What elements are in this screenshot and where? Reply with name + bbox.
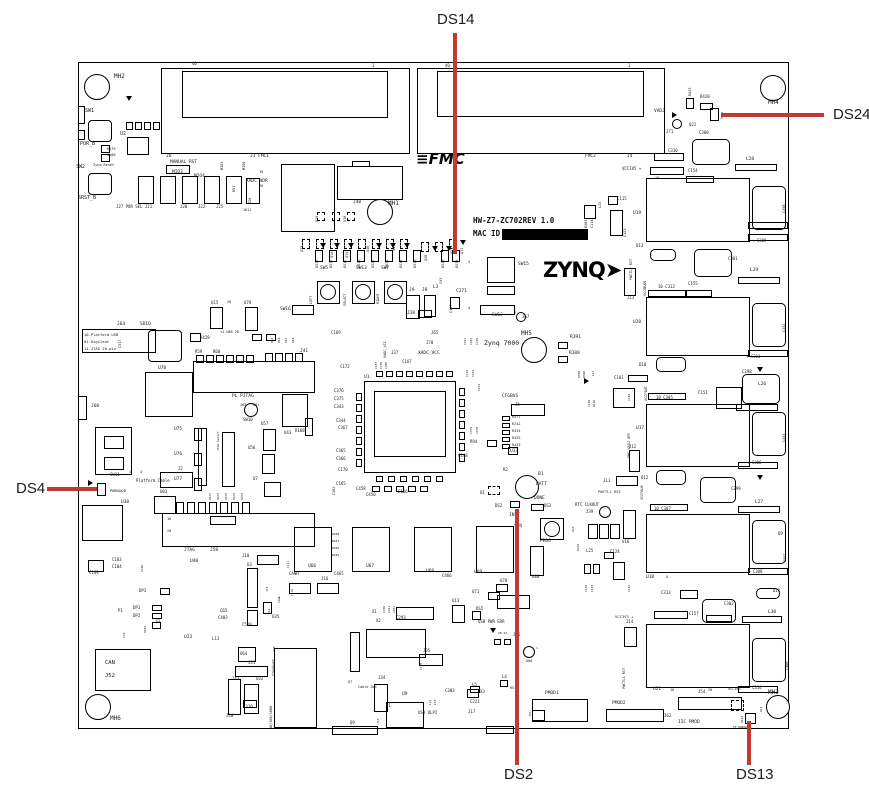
board-component — [426, 371, 433, 377]
silkscreen-label: L26 — [758, 383, 766, 388]
silkscreen-label: SW7 — [381, 267, 389, 272]
silkscreen-label: C172 — [340, 365, 350, 369]
silkscreen-label: R379 — [233, 493, 236, 500]
board-component — [210, 516, 236, 525]
silkscreen-label: L4 — [502, 675, 507, 679]
silkscreen-label: 1 — [628, 64, 630, 68]
silkscreen-label: U71 — [472, 590, 479, 594]
silkscreen-label: J70 — [426, 341, 433, 345]
board-component — [502, 437, 510, 442]
board-component — [78, 106, 85, 124]
silkscreen-label: L21 — [592, 371, 595, 376]
silkscreen-label: ETHERNET — [273, 659, 277, 676]
board-component — [356, 448, 362, 456]
silkscreen-label: J63 — [240, 404, 246, 408]
silkscreen-label: R420 — [700, 95, 710, 99]
silkscreen-label: U17 — [636, 427, 644, 432]
silkscreen-label: R388 — [569, 352, 580, 357]
silkscreen-label: J27 POR SEL J21 — [116, 205, 152, 209]
silkscreen-label: C170 — [338, 468, 348, 472]
board-component — [194, 428, 202, 441]
silkscreen-label: Q22 — [689, 123, 696, 127]
silkscreen-label: J8 — [422, 289, 427, 294]
board-revision-text: HW-Z7-ZC702REV 1.0 — [473, 217, 554, 225]
silkscreen-label: J62 — [664, 714, 671, 718]
silkscreen-label: U9 — [402, 693, 407, 698]
silkscreen-label: J20 — [180, 205, 187, 209]
board-component — [752, 520, 786, 564]
board-component — [616, 476, 638, 486]
silkscreen-label: J12 — [629, 445, 636, 449]
board-component — [356, 426, 362, 434]
silkscreen-label: MIO5 — [221, 162, 225, 170]
polarity-mark — [404, 243, 410, 248]
silkscreen-label: J2 — [178, 467, 183, 471]
silkscreen-label: L3 — [433, 286, 438, 291]
silkscreen-label: 1 — [129, 471, 131, 475]
silkscreen-label: C379 — [470, 427, 473, 434]
polarity-mark — [460, 240, 466, 245]
silkscreen-label: C129 — [585, 585, 588, 592]
callout-line-ds4 — [47, 487, 97, 491]
board-component — [263, 429, 276, 451]
board-component — [487, 286, 515, 295]
silkscreen-label: R390 — [583, 371, 586, 378]
board-component — [558, 356, 568, 363]
silkscreen-label: J6 — [166, 155, 171, 160]
board-component — [646, 514, 750, 573]
silkscreen-label: J67 — [522, 315, 529, 319]
silkscreen-label: C148 — [458, 454, 468, 458]
silkscreen-label: PWCTL1 RST — [623, 668, 627, 689]
board-component — [210, 307, 223, 329]
board-component — [104, 436, 124, 449]
silkscreen-label: PWCTL1 RST — [598, 490, 621, 494]
silkscreen-label: C385 — [385, 362, 388, 369]
silkscreen-label: 10 C305 — [656, 396, 673, 400]
board-component — [424, 476, 431, 482]
silkscreen-label: C450 — [366, 493, 376, 497]
silkscreen-label: 10 C307 — [654, 507, 671, 511]
silkscreen-label: RIGHT — [377, 293, 381, 304]
board-component — [235, 666, 268, 677]
silkscreen-label: DS19 — [414, 260, 418, 268]
board-component — [135, 122, 142, 130]
silkscreen-label: VADJ — [654, 110, 665, 115]
silkscreen-label: C149 — [89, 571, 99, 575]
silkscreen-label: C70 — [123, 633, 126, 638]
board-component — [502, 416, 510, 421]
silkscreen-label: U66 — [526, 660, 532, 664]
silkscreen-label: 20 — [259, 185, 263, 189]
silkscreen-label: C187 — [375, 362, 378, 369]
board-component — [599, 524, 609, 539]
silkscreen-label: DONE — [534, 497, 545, 502]
silkscreen-label: 11.JTAG 20-pin — [84, 347, 116, 351]
board-component — [467, 689, 479, 698]
silkscreen-label: J39 — [586, 510, 593, 514]
silkscreen-label: U18 — [646, 576, 654, 581]
board-component — [680, 590, 698, 599]
silkscreen-label: U81 — [253, 404, 259, 408]
silkscreen-label: 1 — [372, 64, 374, 68]
silkscreen-label: Cable Det — [358, 686, 377, 690]
board-component — [497, 595, 530, 609]
board-component — [350, 632, 360, 672]
silkscreen-label: C343 — [334, 405, 344, 409]
silkscreen-label: J11 — [603, 479, 610, 483]
silkscreen-label: U19 — [633, 212, 641, 217]
silkscreen-label: C165 — [336, 482, 346, 486]
silkscreen-label: Q13 — [301, 246, 305, 252]
silkscreen-label: SW13 — [356, 267, 367, 272]
silkscreen-label: PL PJTAG — [232, 395, 254, 400]
callout-label-ds4: DS4 — [16, 480, 45, 497]
board-component — [305, 418, 313, 436]
board-component — [502, 423, 510, 428]
silkscreen-label: R196 — [593, 400, 596, 407]
board-component — [88, 173, 112, 195]
silkscreen-label: C441 — [388, 606, 391, 613]
silkscreen-label: R242 — [512, 423, 520, 427]
silkscreen-label: R402 — [144, 626, 147, 633]
silkscreen-label: J17 — [468, 710, 475, 714]
board-component — [337, 166, 403, 200]
silkscreen-label: XADC_VCC — [384, 341, 388, 358]
silkscreen-label: J40 — [353, 201, 361, 206]
board-component — [160, 176, 176, 204]
silkscreen-label: C156 — [628, 585, 631, 592]
silkscreen-label: J58 — [210, 549, 218, 554]
board-component — [584, 564, 591, 574]
silkscreen-label: 19 — [259, 171, 263, 175]
board-component — [650, 167, 684, 175]
mounting-hole — [599, 506, 611, 518]
silkscreen-label: DS23 — [400, 260, 404, 268]
silkscreen-label: Q19 — [316, 216, 320, 222]
callout-label-ds14: DS14 — [437, 11, 475, 28]
silkscreen-label: S1 — [156, 620, 160, 624]
silkscreen-label: VCC1V5 + — [622, 167, 641, 171]
polarity-mark — [757, 367, 763, 372]
silkscreen-label: MH3 — [768, 690, 779, 696]
board-component — [459, 421, 465, 429]
silkscreen-label: R477 — [512, 416, 520, 420]
silkscreen-label: Platform Cable — [136, 479, 170, 483]
board-component — [154, 496, 176, 514]
silkscreen-label: U2 — [120, 132, 126, 137]
board-component — [247, 568, 258, 608]
board-component — [459, 443, 465, 451]
board-component — [742, 374, 780, 404]
board-component — [384, 486, 392, 492]
board-component — [476, 526, 514, 573]
silkscreen-label: U21 — [653, 688, 661, 693]
board-component — [593, 564, 600, 574]
silkscreen-label: DS17 — [344, 260, 348, 268]
board-component — [244, 684, 259, 714]
board-component — [738, 277, 780, 284]
silkscreen-label: R374 — [241, 493, 244, 500]
silkscreen-label: L30 — [768, 611, 776, 616]
silkscreen-label: R433 — [512, 444, 520, 448]
silkscreen-label: 10.Platform USB — [84, 333, 118, 337]
silkscreen-label: SW2 — [76, 165, 85, 170]
board-component — [494, 639, 501, 645]
silkscreen-label: FMC2 — [585, 155, 596, 160]
board-component — [162, 513, 315, 547]
silkscreen-label: J10 — [242, 554, 249, 558]
silkscreen-label: PMOD1 — [545, 692, 559, 697]
silkscreen-label: R371 — [209, 493, 212, 500]
silkscreen-label: LEFT — [310, 296, 314, 304]
board-component — [332, 212, 340, 221]
silkscreen-label: C313 — [661, 591, 671, 595]
board-component — [347, 212, 355, 221]
silkscreen-label: J31 — [248, 661, 255, 665]
silkscreen-label: + C309 — [752, 239, 766, 243]
silkscreen-label: USB PWR ERR — [478, 620, 505, 624]
mounting-hole — [760, 75, 786, 101]
board-component — [126, 122, 133, 130]
silkscreen-label: L10 — [434, 700, 437, 705]
board-component — [736, 404, 778, 411]
board-component — [654, 153, 684, 161]
board-component — [748, 222, 788, 229]
silkscreen-label: U1 — [364, 376, 369, 381]
board-component — [694, 249, 732, 277]
silkscreen-label: + C306 — [747, 461, 761, 465]
board-component — [710, 108, 719, 121]
silkscreen-label: U43 — [284, 431, 291, 435]
silkscreen-label: U66 — [308, 565, 316, 570]
silkscreen-label: C466 — [442, 574, 452, 578]
polarity-mark — [584, 378, 589, 384]
silkscreen-label: C301 — [728, 257, 738, 261]
callout-line-ds24 — [721, 113, 824, 117]
board-component — [356, 415, 362, 423]
board-component — [376, 476, 383, 482]
board-component — [742, 616, 782, 623]
silkscreen-label: R66 — [278, 338, 281, 343]
silkscreen-label: U79 — [244, 301, 251, 305]
board-component — [446, 371, 453, 377]
silkscreen-label: C111 — [287, 561, 290, 568]
silkscreen-label: VCCPINT — [645, 386, 649, 401]
silkscreen-label: SW12 — [492, 314, 503, 319]
silkscreen-label: X3 — [480, 690, 485, 694]
board-component — [257, 555, 279, 565]
board-component — [281, 164, 335, 232]
silkscreen-label: J1 — [386, 704, 391, 708]
board-component — [358, 239, 366, 249]
silkscreen-label: L27 — [755, 501, 763, 506]
silkscreen-label: 1 — [514, 311, 516, 315]
mounting-hole — [355, 284, 371, 300]
silkscreen-label: VCC3V3 — [728, 688, 741, 692]
board-component — [486, 726, 514, 734]
silkscreen-label: C48 — [273, 647, 276, 652]
silkscreen-label: MIO4 — [194, 175, 205, 180]
board-component — [228, 679, 241, 715]
board-component — [406, 371, 413, 377]
board-component — [613, 388, 635, 408]
board-component — [408, 486, 416, 492]
silkscreen-label: SW1 — [85, 109, 94, 114]
silkscreen-label: J26 — [249, 198, 253, 204]
silkscreen-label: 40 — [445, 64, 450, 68]
silkscreen-label: 1 — [536, 647, 538, 650]
board-component — [400, 476, 407, 482]
silkscreen-label: PWRGOOD — [110, 489, 126, 493]
silkscreen-label: VCCPAUX — [641, 485, 645, 500]
callout-label-ds2: DS2 — [504, 766, 533, 783]
polarity-mark — [672, 112, 677, 118]
board-component — [531, 504, 544, 511]
silkscreen-label: U35 — [272, 615, 279, 619]
silkscreen-label: R372 — [217, 493, 220, 500]
silkscreen-label: L13 — [212, 637, 219, 641]
silkscreen-label: R391 — [570, 336, 581, 341]
silkscreen-label: C166 — [398, 490, 408, 494]
silkscreen-label: XADC HDR — [246, 180, 268, 185]
silkscreen-label: C299 — [731, 487, 741, 491]
board-component — [623, 510, 636, 539]
silkscreen-label: C298 — [742, 370, 752, 374]
silkscreen-label: C153 — [624, 229, 628, 237]
callout-line-ds14 — [453, 33, 457, 254]
silkscreen-label: C271 — [456, 290, 467, 295]
silkscreen-label: C65 — [220, 609, 227, 613]
silkscreen-label: 40 — [192, 62, 197, 66]
silkscreen-label: U37 — [510, 450, 518, 455]
board-component — [752, 303, 786, 347]
silkscreen-label: VCC3V3 + — [615, 615, 633, 619]
board-component — [648, 290, 686, 297]
board-component — [317, 583, 339, 594]
silkscreen-label: C101 — [614, 376, 624, 380]
polarity-mark — [432, 246, 438, 251]
board-component — [352, 161, 370, 167]
silkscreen-label: C162 — [466, 370, 469, 377]
board-component — [606, 709, 664, 722]
fmc-logo: ≡FMC — [416, 150, 465, 168]
silkscreen-label: J9 — [409, 289, 414, 294]
board-component — [459, 432, 465, 440]
silkscreen-label: C398 — [783, 205, 787, 213]
silkscreen-label: L28 — [746, 158, 754, 163]
silkscreen-label: J38 — [407, 312, 415, 317]
board-component — [646, 624, 750, 688]
silkscreen-label: L5 — [472, 683, 477, 687]
silkscreen-label: JTAG Select — [217, 431, 220, 451]
silkscreen-label: SELECT — [344, 293, 348, 306]
silkscreen-label: C403 — [218, 616, 228, 620]
silkscreen-label: D10 — [639, 363, 646, 367]
silkscreen-label: C458 — [356, 487, 366, 491]
silkscreen-label: U32 — [256, 677, 263, 681]
silkscreen-label: 4 — [140, 471, 142, 475]
board-component — [610, 210, 623, 236]
silkscreen-label: 28 22 — [498, 632, 507, 635]
board-component — [152, 605, 162, 611]
silkscreen-label: PWCTL2 RST — [630, 259, 634, 280]
silkscreen-label: C235 — [476, 338, 479, 345]
silkscreen-label: C221 — [470, 700, 480, 704]
silkscreen-label: Q16 — [367, 246, 371, 252]
silkscreen-label: PROG — [540, 540, 551, 545]
silkscreen-label: U67 — [366, 565, 374, 570]
silkscreen-label: R435 — [512, 437, 520, 441]
silkscreen-label: J41 — [300, 350, 308, 355]
board-component — [646, 178, 750, 242]
silkscreen-label: C430 — [383, 606, 386, 613]
silkscreen-label: U30 — [121, 501, 129, 506]
silkscreen-label: SW16 — [280, 308, 291, 313]
silkscreen-label: MIO6 — [243, 162, 247, 170]
board-component — [97, 483, 106, 496]
silkscreen-label: X2 — [376, 619, 381, 623]
silkscreen-label: XADC_VCC — [418, 352, 440, 357]
board-component — [160, 588, 170, 595]
board-component — [628, 375, 648, 382]
silkscreen-label: U40 — [190, 560, 198, 565]
silkscreen-label: C155 — [688, 282, 698, 286]
silkscreen-label: C93 — [440, 278, 444, 284]
silkscreen-label: C365 — [336, 449, 346, 453]
silkscreen-label: C303 — [445, 689, 455, 693]
board-component — [752, 412, 786, 456]
silkscreen-label: DS22 — [372, 260, 376, 268]
board-component — [194, 453, 202, 466]
silkscreen-label: C123 — [591, 585, 594, 592]
polarity-mark — [757, 475, 763, 480]
silkscreen-label: U80 — [532, 575, 539, 579]
silkscreen-label: Q7 — [348, 681, 352, 685]
board-component — [262, 454, 275, 474]
silkscreen-label: C366 — [336, 457, 346, 461]
silkscreen-label: R434 — [512, 430, 520, 434]
silkscreen-label: C106 — [141, 565, 144, 572]
silkscreen-label: R389 — [578, 371, 581, 378]
silkscreen-label: R446 — [332, 547, 339, 550]
silkscreen-label: C151 — [698, 391, 708, 395]
polarity-mark — [334, 243, 340, 248]
board-component — [487, 440, 497, 447]
silkscreen-label: Q20 — [425, 255, 429, 261]
silkscreen-label: 4 — [468, 261, 470, 265]
mounting-hole — [544, 521, 560, 537]
silkscreen-label: 20 — [227, 301, 231, 305]
silkscreen-label: SW15 — [518, 263, 529, 268]
board-component — [488, 486, 500, 495]
silkscreen-label: 10/100/1000 — [270, 706, 274, 729]
board-component — [646, 404, 750, 467]
silkscreen-label: J25 — [216, 205, 223, 209]
board-component — [420, 486, 428, 492]
board-component — [144, 122, 151, 130]
silkscreen-label: U77 — [174, 478, 182, 483]
silkscreen-label: CANL — [278, 596, 281, 603]
silkscreen-label: J30 — [226, 714, 233, 718]
silkscreen-label: C310 — [668, 149, 678, 153]
silkscreen-label: C378 — [476, 427, 479, 434]
silkscreen-label: B1 — [538, 473, 543, 478]
silkscreen-label: SW10 — [243, 418, 253, 422]
silkscreen-label: JTAG — [184, 549, 195, 554]
silkscreen-label: U68 — [426, 570, 434, 575]
silkscreen-label: 10 — [655, 177, 659, 181]
